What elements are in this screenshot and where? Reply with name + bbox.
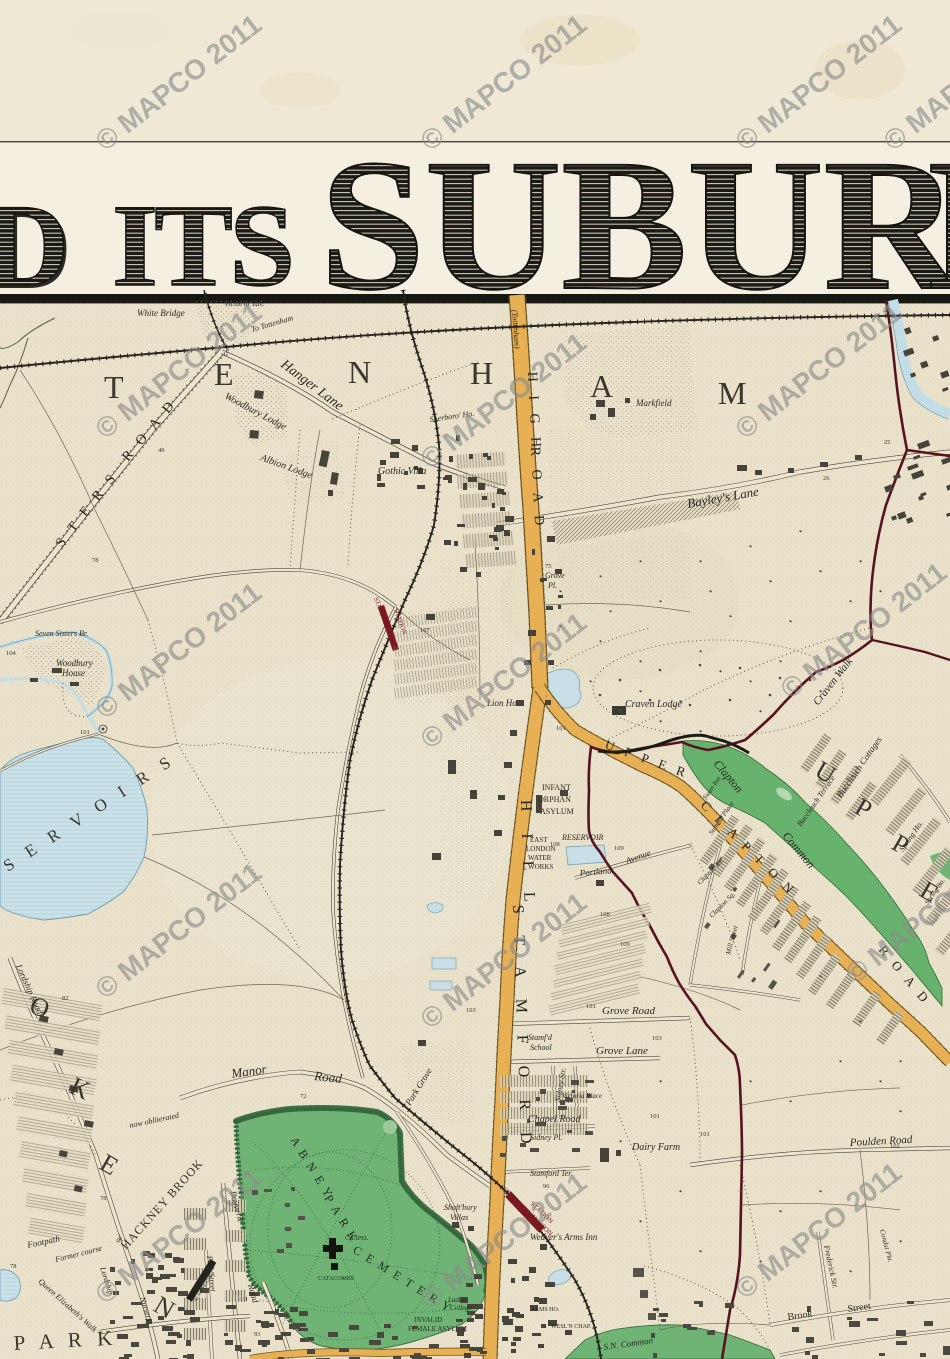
svg-text:Seven Sisters Br.: Seven Sisters Br. xyxy=(35,629,88,638)
svg-text:93: 93 xyxy=(254,1331,261,1338)
svg-text:75: 75 xyxy=(545,563,552,570)
svg-text:104: 104 xyxy=(6,650,17,657)
svg-text:109: 109 xyxy=(620,941,630,948)
svg-text:Markfield: Markfield xyxy=(635,398,672,408)
svg-text:101: 101 xyxy=(700,1131,710,1138)
svg-text:78: 78 xyxy=(92,557,99,564)
svg-text:Dairy Farm: Dairy Farm xyxy=(631,1142,680,1153)
svg-text:101: 101 xyxy=(80,729,90,736)
svg-text:49: 49 xyxy=(158,447,165,454)
svg-text:Craven Lodge: Craven Lodge xyxy=(625,699,683,710)
svg-text:102: 102 xyxy=(890,1143,900,1150)
svg-text:WESL'N CHAP.: WESL'N CHAP. xyxy=(551,1324,592,1330)
svg-text:School: School xyxy=(530,1043,553,1052)
svg-text:College: College xyxy=(450,1304,472,1312)
svg-text:Road: Road xyxy=(313,1068,343,1086)
svg-text:Sidney Pl.: Sidney Pl. xyxy=(530,1133,562,1142)
svg-text:Pl.: Pl. xyxy=(547,581,557,590)
svg-text:109: 109 xyxy=(614,845,624,852)
svg-text:Grove Lane: Grove Lane xyxy=(596,1045,648,1057)
svg-text:Grove Road: Grove Road xyxy=(602,1005,656,1017)
svg-text:101: 101 xyxy=(556,725,566,732)
svg-text:78: 78 xyxy=(100,1195,107,1202)
svg-text:ITS: ITS xyxy=(112,180,295,311)
svg-text:101: 101 xyxy=(586,1003,596,1010)
svg-text:E: E xyxy=(214,356,234,392)
svg-text:Stamf'd: Stamf'd xyxy=(528,1033,553,1042)
svg-text:WORKS: WORKS xyxy=(528,863,553,871)
svg-text:Weaver's Arms Inn: Weaver's Arms Inn xyxy=(530,1232,598,1242)
svg-text:Shaft'bury: Shaft'bury xyxy=(444,1203,477,1212)
svg-text:101: 101 xyxy=(650,1113,660,1120)
svg-text:ALMS HO.: ALMS HO. xyxy=(531,1307,560,1313)
svg-text:Gothic Villa: Gothic Villa xyxy=(378,466,426,477)
svg-text:108: 108 xyxy=(600,911,610,918)
svg-text:Villas: Villas xyxy=(450,1213,468,1222)
svg-text:RESERVOIR: RESERVOIR xyxy=(561,833,603,842)
svg-text:White Bridge: White Bridge xyxy=(137,308,185,318)
svg-text:Woodbury: Woodbury xyxy=(56,658,93,668)
svg-text:INVALID: INVALID xyxy=(414,1316,442,1324)
svg-text:N: N xyxy=(348,354,371,390)
svg-text:25: 25 xyxy=(884,439,891,446)
svg-text:Chapel Road: Chapel Road xyxy=(528,1114,581,1125)
svg-text:EAST: EAST xyxy=(530,836,548,844)
svg-text:Victoria Place: Victoria Place xyxy=(562,1092,602,1100)
svg-text:ORPHAN: ORPHAN xyxy=(538,795,571,804)
svg-text:Grove: Grove xyxy=(545,571,565,580)
svg-text:D: D xyxy=(0,180,69,311)
svg-text:72: 72 xyxy=(300,1093,307,1100)
svg-text:107: 107 xyxy=(420,627,431,634)
svg-text:26: 26 xyxy=(823,475,830,482)
svg-text:WATER: WATER xyxy=(528,854,552,862)
svg-text:ASYLUM: ASYLUM xyxy=(540,807,574,816)
svg-text:H: H xyxy=(470,355,493,391)
svg-text:House: House xyxy=(61,668,85,678)
svg-text:108: 108 xyxy=(550,841,560,848)
svg-text:78: 78 xyxy=(10,1263,17,1270)
svg-text:INFANT: INFANT xyxy=(542,783,571,792)
svg-text:FEMALE ASYLUM: FEMALE ASYLUM xyxy=(408,1325,468,1333)
svg-text:A: A xyxy=(590,368,613,404)
svg-text:CATACOMBS: CATACOMBS xyxy=(318,1276,354,1282)
svg-text:M: M xyxy=(718,375,746,411)
svg-text:CHAPEL: CHAPEL xyxy=(345,1236,369,1242)
svg-text:82: 82 xyxy=(62,995,69,1002)
svg-text:103: 103 xyxy=(652,1035,662,1042)
